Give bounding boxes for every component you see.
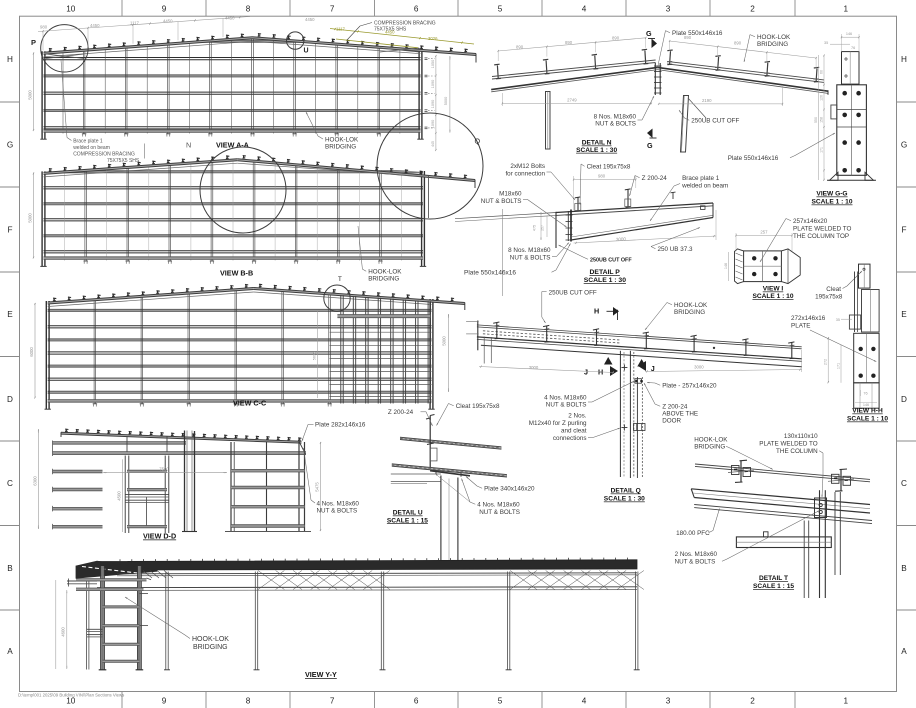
svg-text:171: 171 [837,363,841,369]
svg-text:A: A [7,647,13,656]
svg-text:980: 980 [40,25,48,30]
svg-text:H: H [594,307,599,316]
svg-text:G: G [646,29,652,38]
svg-text:Plate 340x146x20: Plate 340x146x20 [484,486,535,493]
svg-text:NUT & BOLTS: NUT & BOLTS [479,509,520,516]
svg-text:B: B [7,564,13,573]
svg-text:2749: 2749 [567,98,577,103]
svg-text:158: 158 [820,117,824,123]
svg-text:HOOK-LOK: HOOK-LOK [368,269,402,276]
svg-text:4450: 4450 [305,17,315,22]
svg-text:H: H [901,55,907,64]
svg-text:3: 3 [666,697,671,706]
svg-text:VIEW G-G: VIEW G-G [816,191,847,198]
svg-text:HOOK-LOK: HOOK-LOK [694,437,728,444]
svg-text:1050: 1050 [431,60,435,68]
svg-text:2: 2 [750,697,755,706]
svg-text:BRIDGING: BRIDGING [674,309,705,316]
svg-text:1117: 1117 [336,27,346,32]
svg-text:HOOK-LOK: HOOK-LOK [325,137,359,144]
svg-text:Plate - 257x146x20: Plate - 257x146x20 [662,383,717,390]
svg-text:890: 890 [516,45,524,50]
svg-text:5695: 5695 [313,352,317,360]
svg-text:G: G [901,141,907,150]
svg-text:60: 60 [820,70,824,74]
svg-text:DOOR: DOOR [662,418,681,425]
svg-text:Z 200-24: Z 200-24 [662,404,688,411]
svg-text:E: E [901,310,907,319]
svg-text:75X75X5 SHS: 75X75X5 SHS [374,27,407,33]
svg-text:G: G [647,141,653,150]
svg-text:257: 257 [541,225,545,231]
svg-text:SCALE 1 : 30: SCALE 1 : 30 [604,496,645,503]
svg-text:4 Nos. M18x60: 4 Nos. M18x60 [317,501,360,508]
svg-text:4500: 4500 [117,491,122,501]
svg-text:9: 9 [162,5,167,14]
svg-text:D: D [901,395,907,404]
svg-text:welded on beam: welded on beam [73,145,110,151]
svg-text:146: 146 [724,263,728,269]
svg-text:445: 445 [431,141,435,147]
svg-text:8 Nos. M18x60: 8 Nos. M18x60 [594,114,637,121]
svg-text:Plate 282x146x16: Plate 282x146x16 [315,422,366,429]
svg-text:NUT & BOLTS: NUT & BOLTS [675,559,716,566]
svg-text:VIEW D-D: VIEW D-D [143,532,176,541]
svg-text:550: 550 [814,117,818,123]
svg-text:F: F [7,226,12,235]
svg-text:SCALE 1 : 30: SCALE 1 : 30 [576,147,617,154]
svg-text:3000: 3000 [694,365,704,370]
svg-text:NUT & BOLTS: NUT & BOLTS [510,255,551,262]
svg-text:5000: 5000 [442,336,447,346]
svg-text:BRIDGING: BRIDGING [694,444,725,451]
svg-text:THE COLUMN: THE COLUMN [776,448,818,455]
svg-text:1: 1 [844,697,849,706]
svg-text:6: 6 [414,697,419,706]
svg-text:3000: 3000 [529,365,539,370]
svg-text:D: D [7,395,13,404]
svg-text:5000: 5000 [444,97,448,105]
svg-text:SCALE 1 : 10: SCALE 1 : 10 [752,293,793,300]
svg-text:SCALE 1 : 15: SCALE 1 : 15 [387,517,428,524]
svg-text:DETAIL P: DETAIL P [590,269,621,276]
svg-text:890: 890 [734,41,742,46]
svg-text:250UB CUT OFF: 250UB CUT OFF [691,118,739,125]
svg-text:welded on beam: welded on beam [681,183,728,190]
svg-text:76: 76 [863,392,867,396]
svg-text:130x110x10: 130x110x10 [784,433,818,440]
svg-text:SCALE 1 : 10: SCALE 1 : 10 [847,416,888,423]
svg-text:Cleat 195x75x8: Cleat 195x75x8 [456,403,500,410]
svg-text:3: 3 [666,5,671,14]
svg-text:M18x60: M18x60 [499,191,522,198]
svg-text:475: 475 [533,225,537,231]
svg-text:B: B [901,564,907,573]
svg-text:6300: 6300 [32,476,37,486]
svg-text:2: 2 [750,5,755,14]
svg-text:NUT & BOLTS: NUT & BOLTS [317,508,358,515]
svg-text:250 UB 37.3: 250 UB 37.3 [658,246,694,253]
svg-text:F: F [901,226,906,235]
svg-text:1117: 1117 [130,21,140,26]
svg-text:D:\temp\001 2025\09 Building V: D:\temp\001 2025\09 Building VIN\\Plan S… [18,692,124,697]
svg-text:7500: 7500 [159,467,169,472]
svg-text:Plate 550x146x16: Plate 550x146x16 [728,155,779,162]
svg-text:180.00 PFC: 180.00 PFC [676,530,710,537]
svg-text:2 Nos. M18x60: 2 Nos. M18x60 [675,551,718,558]
svg-text:BRIDGING: BRIDGING [193,644,228,651]
svg-text:Cleat 195x75x8: Cleat 195x75x8 [587,164,631,171]
svg-text:VIEW I: VIEW I [763,286,784,293]
svg-text:7: 7 [330,697,335,706]
svg-text:5: 5 [498,5,503,14]
svg-text:Q: Q [475,137,481,146]
svg-text:3000: 3000 [616,236,627,242]
svg-text:SCALE 1 : 30: SCALE 1 : 30 [584,277,627,284]
svg-text:Brace plate 1: Brace plate 1 [73,139,103,145]
svg-text:272: 272 [824,359,828,365]
svg-text:N: N [186,141,191,150]
svg-text:2xM12 Bolts: 2xM12 Bolts [510,163,545,170]
svg-text:126: 126 [820,95,824,101]
svg-text:8: 8 [246,697,251,706]
svg-text:250UB CUT OFF: 250UB CUT OFF [590,258,632,264]
svg-text:3026: 3026 [428,36,438,41]
svg-text:76: 76 [851,46,855,50]
svg-text:U: U [304,48,309,55]
svg-text:for connection: for connection [505,171,545,178]
svg-text:Cleat: Cleat [826,286,841,293]
svg-text:DETAIL U: DETAIL U [393,510,423,517]
svg-text:146: 146 [863,403,869,407]
svg-text:2 Nos.: 2 Nos. [568,413,586,420]
svg-text:COMPRESSION BRACING: COMPRESSION BRACING [73,152,135,158]
svg-text:4: 4 [582,5,587,14]
svg-text:5475: 5475 [315,482,320,492]
svg-text:5000: 5000 [28,213,33,223]
svg-text:NUT & BOLTS: NUT & BOLTS [481,198,522,205]
svg-text:NUT & BOLTS: NUT & BOLTS [546,402,587,409]
svg-text:9: 9 [162,697,167,706]
svg-text:DETAIL Q: DETAIL Q [611,488,641,495]
svg-text:890: 890 [612,36,620,41]
svg-text:SCALE 1 : 10: SCALE 1 : 10 [811,199,852,206]
svg-text:P: P [31,38,36,47]
svg-text:BRIDGING: BRIDGING [757,41,788,48]
svg-text:1090: 1090 [431,100,435,108]
svg-text:SCALE 1 : 15: SCALE 1 : 15 [753,583,794,590]
svg-text:NUT & BOLTS: NUT & BOLTS [595,121,636,128]
svg-text:Z 200-24: Z 200-24 [388,409,414,416]
svg-text:2190: 2190 [702,98,712,103]
svg-text:THE COLUMN TOP: THE COLUMN TOP [793,233,849,240]
svg-text:5: 5 [498,697,503,706]
svg-text:VIEW H-H: VIEW H-H [852,408,883,415]
svg-text:4 Nos. M18x60: 4 Nos. M18x60 [477,502,520,509]
svg-text:E: E [7,310,13,319]
svg-text:257: 257 [760,230,768,235]
svg-text:4450: 4450 [90,23,100,28]
svg-text:G: G [7,141,13,150]
svg-text:1090: 1090 [431,80,435,88]
svg-text:1: 1 [844,5,849,14]
svg-text:35: 35 [836,318,840,322]
svg-text:35: 35 [824,41,828,45]
svg-text:HOOK-LOK: HOOK-LOK [192,636,229,643]
svg-text:8: 8 [246,5,251,14]
svg-text:BRIDGING: BRIDGING [368,276,399,283]
svg-text:4600: 4600 [61,627,66,637]
svg-text:272x146x16: 272x146x16 [791,315,826,322]
svg-text:Z 200-24: Z 200-24 [642,175,668,182]
svg-text:VIEW B-B: VIEW B-B [220,268,253,277]
svg-text:980: 980 [598,174,606,179]
svg-text:6: 6 [414,5,419,14]
svg-text:10: 10 [66,5,76,14]
svg-text:171: 171 [820,147,824,153]
svg-text:146: 146 [846,32,852,36]
svg-text:A: A [901,647,907,656]
svg-text:T: T [338,276,342,283]
svg-text:H: H [7,55,13,64]
svg-text:Brace plate 1: Brace plate 1 [682,175,720,182]
svg-text:890: 890 [565,40,573,45]
svg-text:PLATE: PLATE [791,323,810,330]
svg-text:4: 4 [582,697,587,706]
svg-text:ABOVE THE: ABOVE THE [662,411,698,418]
svg-text:10: 10 [66,697,76,706]
svg-text:PLATE WELDED TO: PLATE WELDED TO [793,226,852,233]
svg-text:VIEW C-C: VIEW C-C [233,399,266,408]
svg-text:Plate 550x146x16: Plate 550x146x16 [672,30,723,37]
svg-text:HOOK-LOK: HOOK-LOK [757,34,791,41]
svg-text:6000: 6000 [29,347,34,357]
svg-text:connections: connections [553,435,587,442]
svg-text:C: C [7,479,13,488]
svg-text:8 Nos. M18x60: 8 Nos. M18x60 [508,247,551,254]
svg-text:4450: 4450 [163,19,173,24]
svg-text:and cleat: and cleat [561,428,587,435]
svg-text:DETAIL T: DETAIL T [759,575,788,582]
svg-text:7: 7 [330,5,335,14]
svg-text:HOOK-LOK: HOOK-LOK [674,302,708,309]
svg-text:5000: 5000 [28,90,33,100]
svg-text:250UB CUT OFF: 250UB CUT OFF [549,290,597,297]
svg-text:C: C [901,479,907,488]
svg-text:4 Nos. M18x60: 4 Nos. M18x60 [544,395,587,402]
svg-text:1090: 1090 [431,120,435,128]
svg-text:195x75x8: 195x75x8 [815,294,843,301]
svg-text:VIEW Y-Y: VIEW Y-Y [305,670,337,679]
svg-text:257x146x20: 257x146x20 [793,218,828,225]
svg-text:PLATE WELDED TO: PLATE WELDED TO [759,441,818,448]
svg-text:Plate 550x146x16: Plate 550x146x16 [464,270,516,277]
svg-text:DETAIL N: DETAIL N [582,140,612,147]
svg-text:BRIDGING: BRIDGING [325,144,356,151]
svg-text:M12x40 for Z purling: M12x40 for Z purling [529,420,587,427]
svg-text:J: J [584,368,588,377]
